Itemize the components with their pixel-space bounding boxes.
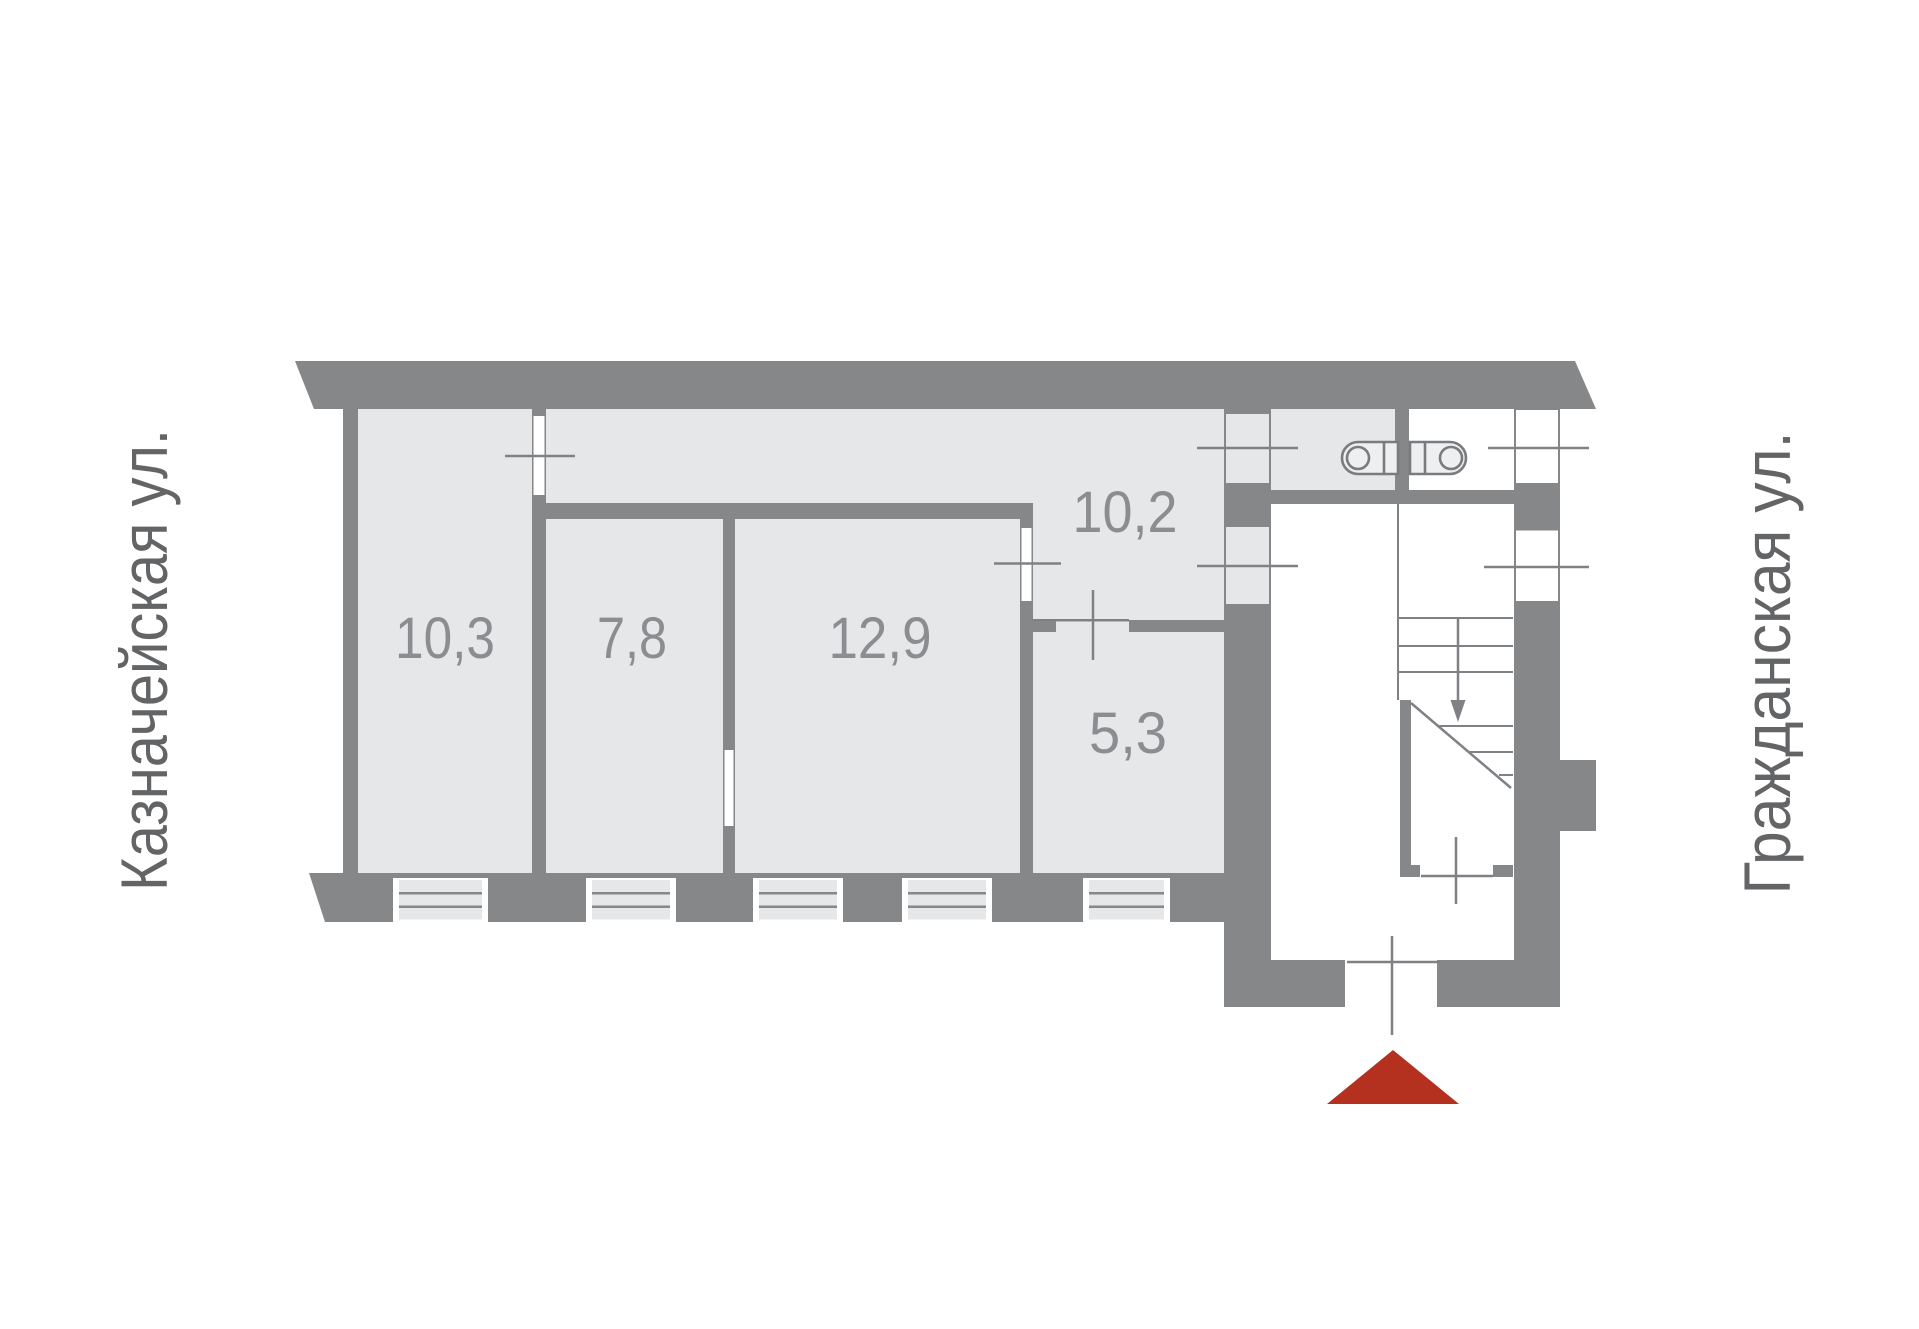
svg-text:10,2: 10,2 [1073,480,1178,545]
svg-text:10,3: 10,3 [395,606,495,671]
svg-text:Гражданская ул.: Гражданская ул. [1730,432,1804,895]
svg-text:7,8: 7,8 [597,606,667,671]
svg-text:12,9: 12,9 [829,606,932,671]
svg-text:Казначейская ул.: Казначейская ул. [107,429,181,891]
svg-text:5,3: 5,3 [1089,701,1167,766]
